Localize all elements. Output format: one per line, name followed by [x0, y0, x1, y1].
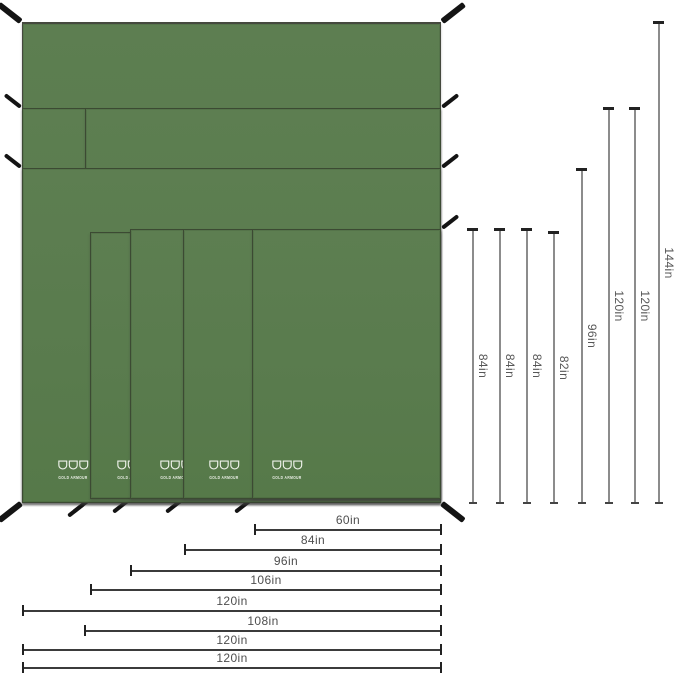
- dimension-tick-bottom: [578, 502, 586, 504]
- corner-tie: [0, 501, 23, 523]
- corner-tie: [440, 2, 465, 24]
- tarp-size-comparison-diagram: GOLD ARMOURGOLD ARMOURGOLD ARMOURGOLD AR…: [0, 0, 679, 677]
- dimension-label: 120in: [638, 290, 652, 321]
- dimension-tick-top: [576, 168, 587, 171]
- gold-armour-logo: GOLD ARMOUR: [270, 460, 304, 482]
- gold-armour-logo: GOLD ARMOUR: [207, 460, 241, 482]
- dimension-line: [185, 549, 441, 551]
- dimension-tick-bottom: [605, 502, 613, 504]
- dimension-label: 60in: [255, 513, 441, 527]
- dimension-tick-top: [467, 228, 478, 231]
- dimension-line: [553, 232, 555, 503]
- corner-tie: [440, 501, 465, 523]
- dimension-line: [23, 610, 441, 612]
- dimension-tick-top: [548, 231, 559, 234]
- dimension-label: 120in: [23, 594, 441, 608]
- svg-text:GOLD ARMOUR: GOLD ARMOUR: [58, 475, 87, 480]
- dimension-line: [634, 108, 636, 503]
- corner-tie: [441, 93, 459, 108]
- dimension-tick-bottom: [655, 502, 663, 504]
- dimension-line: [255, 529, 441, 531]
- dimension-label: 84in: [185, 533, 441, 547]
- dimension-line: [85, 630, 441, 632]
- svg-text:GOLD ARMOUR: GOLD ARMOUR: [209, 475, 238, 480]
- svg-text:GOLD ARMOUR: GOLD ARMOUR: [272, 475, 301, 480]
- dimension-tick-bottom: [550, 502, 558, 504]
- corner-tie: [4, 153, 22, 168]
- dimension-label: 84in: [476, 354, 490, 378]
- dimension-label: 96in: [131, 554, 441, 568]
- dimension-label: 84in: [503, 354, 517, 378]
- dimension-tick-top: [603, 107, 614, 110]
- dimension-tick-bottom: [496, 502, 504, 504]
- dimension-line: [581, 169, 583, 503]
- dimension-label: 120in: [612, 290, 626, 321]
- dimension-label: 106in: [91, 573, 441, 587]
- corner-tie: [441, 214, 459, 229]
- corner-tie: [4, 93, 22, 108]
- corner-tie: [0, 2, 23, 24]
- dimension-tick-bottom: [523, 502, 531, 504]
- corner-tie: [441, 153, 459, 168]
- dimension-tick-top: [521, 228, 532, 231]
- dimension-label: 96in: [585, 324, 599, 348]
- dimension-label: 120in: [23, 651, 441, 665]
- dimension-line: [608, 108, 610, 503]
- dimension-line: [91, 589, 441, 591]
- dimension-label: 82in: [557, 355, 571, 379]
- dimension-tick-top: [629, 107, 640, 110]
- dimension-line: [23, 667, 441, 669]
- dimension-line: [472, 229, 474, 503]
- dimension-line: [658, 22, 660, 503]
- dimension-tick-top: [653, 21, 664, 24]
- dimension-label: 120in: [23, 633, 441, 647]
- dimension-line: [526, 229, 528, 503]
- dimension-label: 108in: [85, 614, 441, 628]
- dimension-line: [131, 570, 441, 572]
- gold-armour-logo: GOLD ARMOUR: [56, 460, 90, 482]
- dimension-label: 84in: [530, 354, 544, 378]
- dimension-tick-top: [494, 228, 505, 231]
- dimension-line: [499, 229, 501, 503]
- dimension-tick-bottom: [469, 502, 477, 504]
- dimension-label: 144in: [662, 247, 676, 278]
- tarp-60x84: GOLD ARMOUR: [252, 229, 441, 499]
- dimension-tick-bottom: [631, 502, 639, 504]
